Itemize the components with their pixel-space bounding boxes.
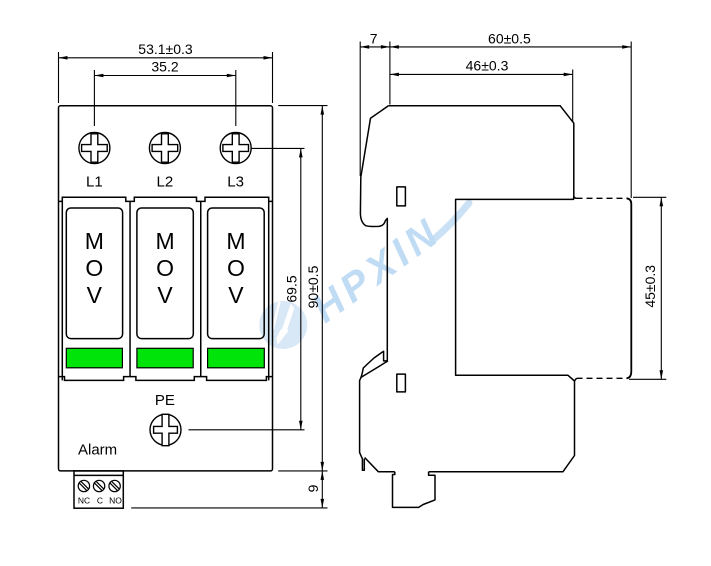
svg-text:C: C [97,496,103,506]
svg-text:V: V [87,282,103,308]
svg-text:O: O [227,255,245,281]
svg-text:60±0.5: 60±0.5 [488,30,531,46]
svg-text:69.5: 69.5 [284,275,300,302]
svg-text:M: M [156,228,175,254]
svg-text:NO: NO [109,496,122,506]
svg-text:9: 9 [305,484,321,492]
svg-text:46±0.3: 46±0.3 [466,58,509,74]
svg-text:O: O [85,255,103,281]
svg-text:M: M [85,228,104,254]
svg-text:L1: L1 [86,173,103,190]
svg-text:O: O [156,255,174,281]
svg-text:L3: L3 [227,173,244,190]
svg-text:V: V [228,282,244,308]
svg-text:M: M [226,228,245,254]
svg-text:35.2: 35.2 [151,59,178,75]
svg-text:V: V [157,282,173,308]
svg-text:7: 7 [370,30,378,46]
svg-text:53.1±0.3: 53.1±0.3 [138,41,193,57]
svg-text:45±0.3: 45±0.3 [642,265,658,308]
svg-text:PE: PE [155,392,175,409]
svg-text:L2: L2 [157,173,174,190]
svg-text:NC: NC [78,496,90,506]
svg-text:90±0.5: 90±0.5 [305,265,321,308]
svg-text:Alarm: Alarm [78,442,117,459]
svg-text:HPXIN: HPXIN [304,209,449,331]
